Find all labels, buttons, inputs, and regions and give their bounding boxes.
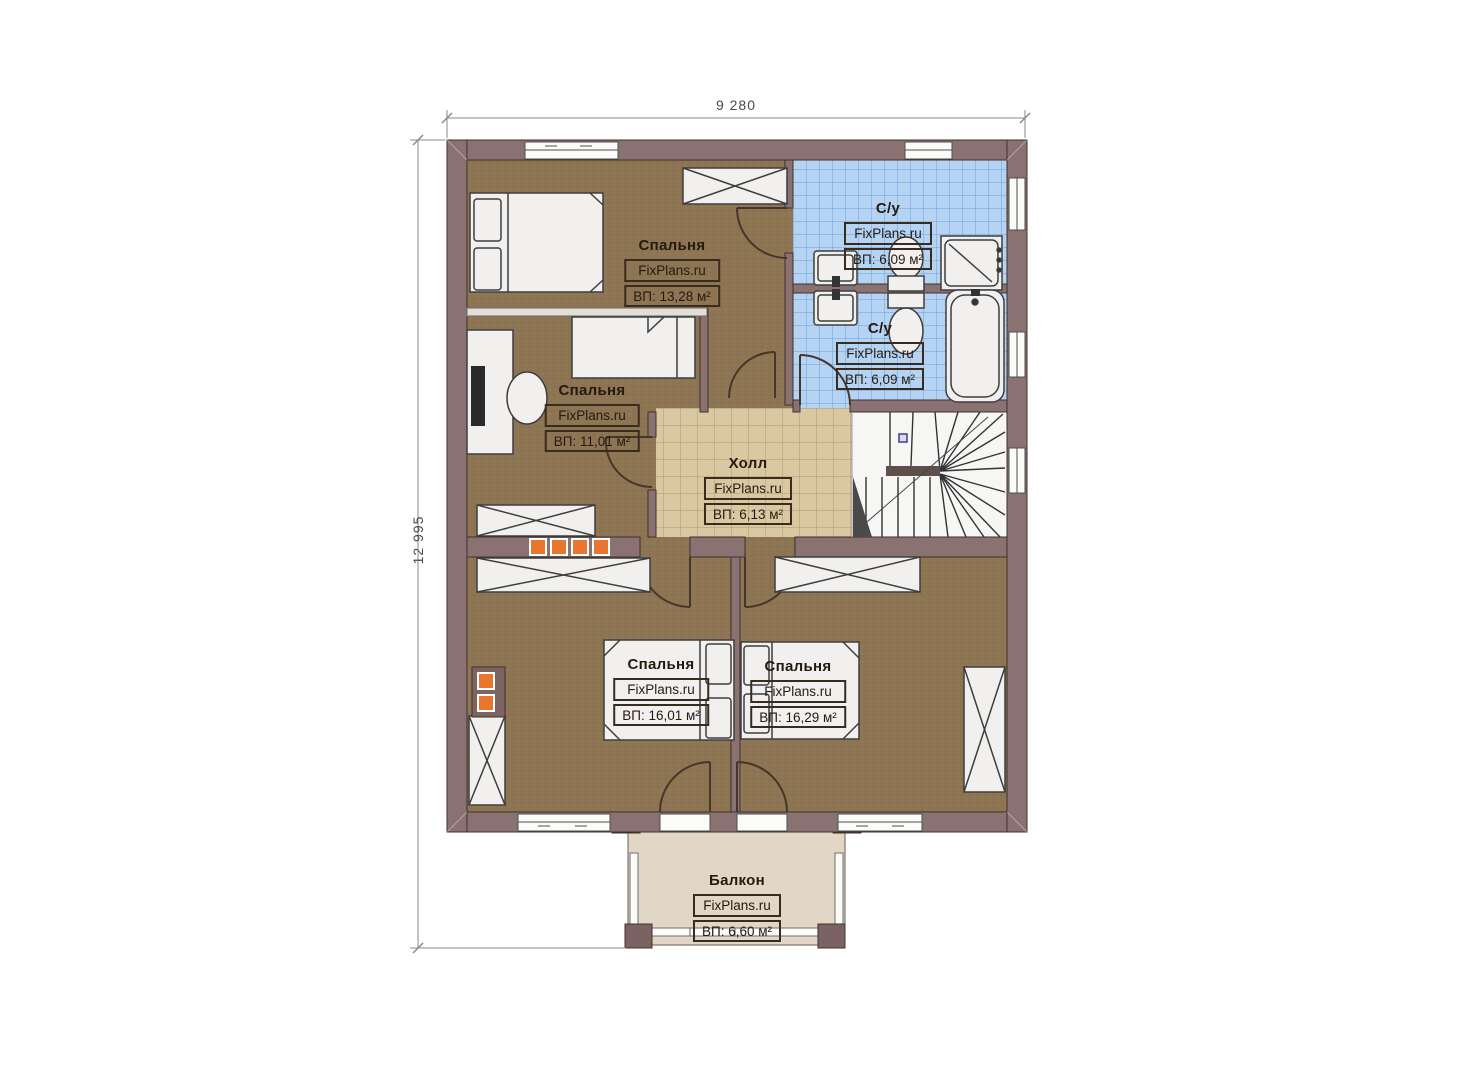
balcony-door-opening-left xyxy=(660,814,710,831)
wall-hall-left-b xyxy=(648,490,656,537)
watermark-box: FixPlans.ru xyxy=(624,259,720,282)
wall-middle-b xyxy=(690,537,745,557)
wall-outer-left xyxy=(447,140,467,832)
watermark-box: FixPlans.ru xyxy=(836,342,924,365)
watermark-box: FixPlans.ru xyxy=(844,222,932,245)
shower xyxy=(941,236,1002,290)
room-area-box: ВП: 6,09 м² xyxy=(844,248,932,271)
wall-corridor-left xyxy=(700,308,708,412)
wall-bathroom-left-b xyxy=(785,253,793,405)
floor-plan-canvas: Спальня FixPlans.ru ВП: 13,28 м² С/у Fix… xyxy=(0,0,1473,1080)
room-name: Спальня xyxy=(750,658,846,675)
desk xyxy=(467,330,513,454)
window-right-3 xyxy=(1009,448,1025,493)
wardrobe-mid xyxy=(477,505,595,536)
stair-landing-rail xyxy=(886,466,940,476)
room-area-box: ВП: 11,01 м² xyxy=(545,430,640,453)
wall-middle-c xyxy=(795,537,1007,557)
wardrobe-top xyxy=(683,168,787,204)
room-name: Балкон xyxy=(693,872,781,889)
window-bottom-right xyxy=(838,814,922,831)
room-label-bedroom-bottom-left: Спальня FixPlans.ru ВП: 16,01 м² xyxy=(613,656,709,726)
wardrobe-right-tall xyxy=(964,667,1005,792)
wall-bathroom-bottom-a xyxy=(793,400,800,412)
double-bed-top xyxy=(470,193,603,292)
room-area-box: ВП: 6,60 м² xyxy=(693,920,781,943)
wall-hall-left-a xyxy=(648,412,656,437)
dimension-width-label: 9 280 xyxy=(696,97,776,113)
stair-start-marker xyxy=(899,434,907,442)
balcony-door-opening-right xyxy=(737,814,787,831)
watermark-box: FixPlans.ru xyxy=(613,678,709,701)
room-area-box: ВП: 16,01 м² xyxy=(613,704,709,727)
room-area-box: ВП: 13,28 м² xyxy=(624,285,720,308)
room-name: Спальня xyxy=(613,656,709,673)
wardrobe-bottom-left-wide xyxy=(477,558,650,592)
room-label-hall: Холл FixPlans.ru ВП: 6,13 м² xyxy=(704,455,792,525)
room-area-box: ВП: 16,29 м² xyxy=(750,706,846,729)
room-area-box: ВП: 6,09 м² xyxy=(836,368,924,391)
room-name: Спальня xyxy=(624,237,720,254)
room-area-box: ВП: 6,13 м² xyxy=(704,503,792,526)
room-name: Спальня xyxy=(545,382,640,399)
bathtub xyxy=(946,289,1004,402)
window-bottom-left xyxy=(518,814,610,831)
room-name: С/у xyxy=(836,320,924,337)
room-label-bedroom-top-left: Спальня FixPlans.ru ВП: 13,28 м² xyxy=(624,237,720,307)
wardrobe-bottom-right-wide xyxy=(775,557,920,592)
room-name: С/у xyxy=(844,200,932,217)
window-top-bedroom xyxy=(525,142,618,159)
room-label-bathroom-top: С/у FixPlans.ru ВП: 6,09 м² xyxy=(844,200,932,270)
room-label-bedroom-bottom-right: Спальня FixPlans.ru ВП: 16,29 м² xyxy=(750,658,846,728)
room-label-balcony: Балкон FixPlans.ru ВП: 6,60 м² xyxy=(693,872,781,942)
room-label-bedroom-mid-left: Спальня FixPlans.ru ВП: 11,01 м² xyxy=(545,382,640,452)
room-name: Холл xyxy=(704,455,792,472)
room-label-bathroom-bottom: С/у FixPlans.ru ВП: 6,09 м² xyxy=(836,320,924,390)
watermark-box: FixPlans.ru xyxy=(704,477,792,500)
watermark-box: FixPlans.ru xyxy=(750,680,846,703)
wardrobe-left-tall xyxy=(469,716,505,805)
window-right-2 xyxy=(1009,332,1025,377)
single-bed xyxy=(572,317,695,378)
watermark-box: FixPlans.ru xyxy=(693,894,781,917)
watermark-box: FixPlans.ru xyxy=(545,404,640,427)
window-right-1 xyxy=(1009,178,1025,230)
window-top-bathroom xyxy=(905,142,952,159)
wall-light-divider xyxy=(467,308,707,316)
chair xyxy=(507,372,547,424)
dimension-height-label: 12 995 xyxy=(410,500,426,580)
